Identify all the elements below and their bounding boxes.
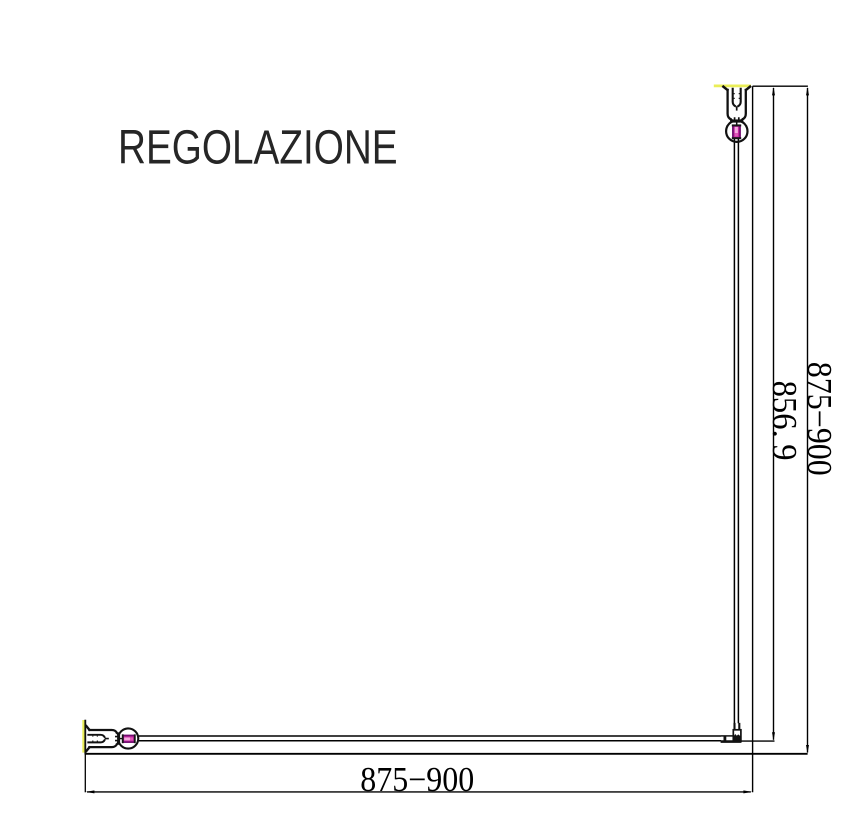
svg-text:875−900: 875−900	[360, 760, 474, 799]
svg-text:REGOLAZIONE: REGOLAZIONE	[118, 122, 398, 175]
svg-text:875−900: 875−900	[800, 362, 839, 476]
svg-text:856. 9: 856. 9	[765, 381, 804, 461]
